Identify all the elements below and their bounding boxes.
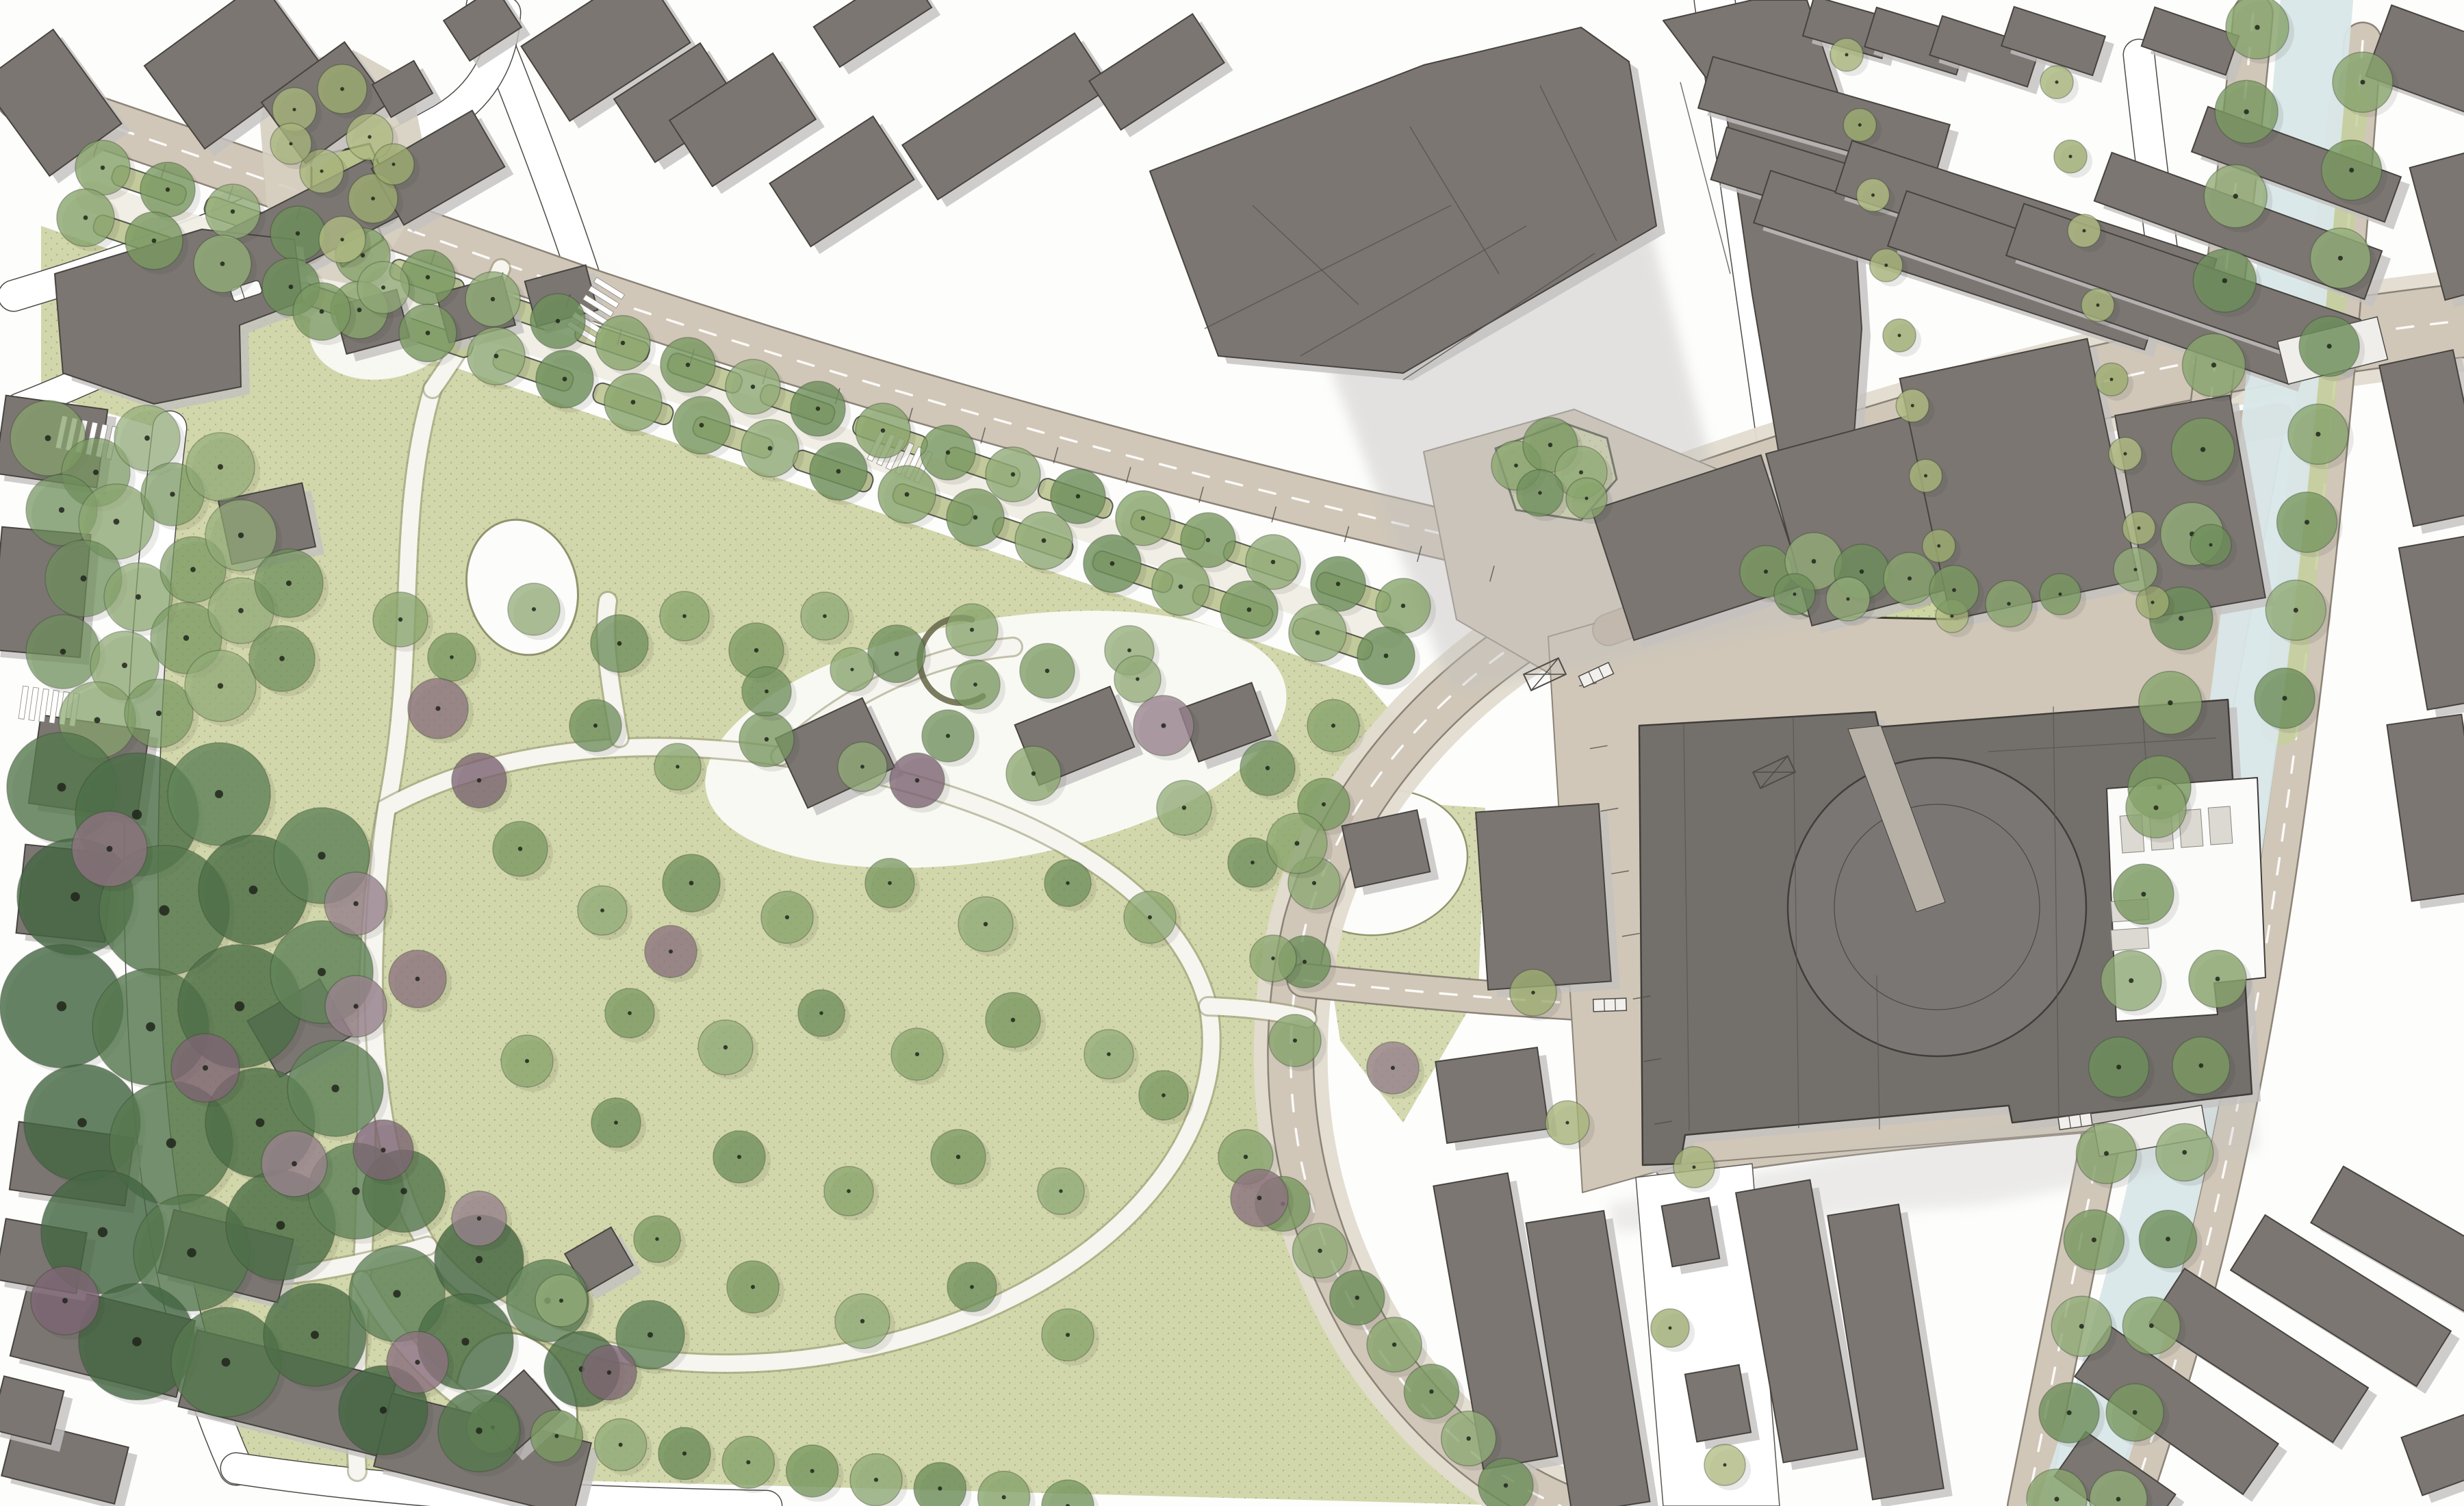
site-courtyard [1788,758,2086,1056]
masterplan-map [0,0,2464,1506]
masterplan-map-frame [0,0,2464,1506]
bus-glyph [1593,998,1627,1012]
map-layers [0,0,2464,1506]
